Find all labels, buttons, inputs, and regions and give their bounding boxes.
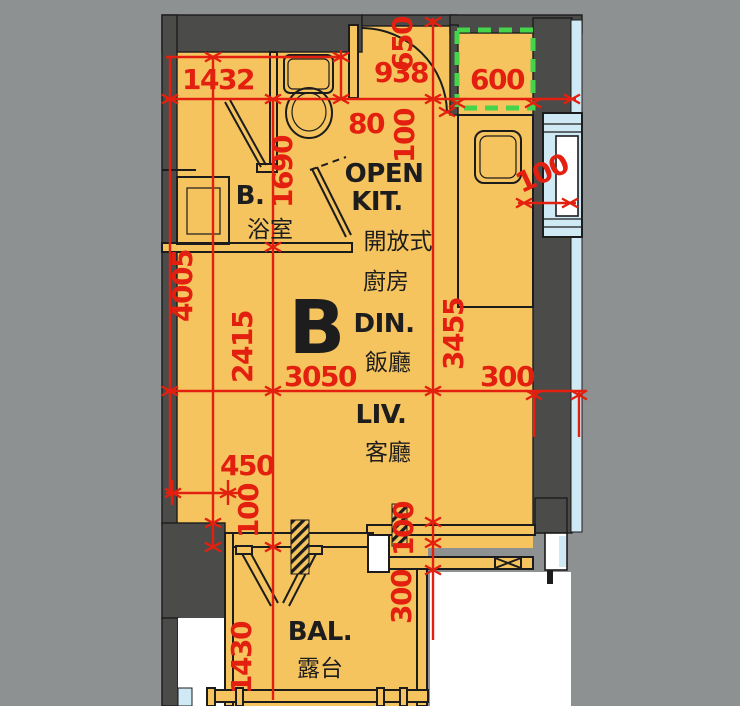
dim-left-height: 4005 xyxy=(166,250,199,322)
room-label-balcony-en: BAL. xyxy=(288,617,352,647)
hatched-wall-1 xyxy=(291,520,309,574)
dim-right-wall-300: 300 xyxy=(480,360,535,393)
room-label-kitchen-zh1: 開放式 xyxy=(364,229,433,255)
wall-stub xyxy=(547,570,553,584)
room-label-dining-en: DIN. xyxy=(354,309,415,339)
dim-right-height: 3455 xyxy=(437,298,470,370)
dim-balcony-depth: 1430 xyxy=(225,621,258,694)
lower-glazing-sliver xyxy=(178,688,192,706)
floor-plan-svg: 1432 938 650 600 80 100 1690 100 4005 24… xyxy=(0,0,740,706)
dim-gap-80: 80 xyxy=(348,107,385,140)
room-label-kitchen-zh2: 廚房 xyxy=(363,269,409,295)
sliding-door xyxy=(388,557,533,569)
dim-door-side-100: 100 xyxy=(388,108,421,163)
room-label-bathroom-abbr: B. xyxy=(236,181,265,211)
dim-bal-wall-300: 300 xyxy=(385,569,418,624)
floorplan-canvas: 1432 938 650 600 80 100 1690 100 4005 24… xyxy=(0,0,740,706)
room-label-living-zh: 客廳 xyxy=(365,440,411,466)
wall-column xyxy=(368,535,389,572)
dim-bal-wall-100: 100 xyxy=(387,501,420,556)
dim-entry-depth: 650 xyxy=(386,16,419,71)
room-label-balcony-zh: 露台 xyxy=(297,656,343,682)
room-label-kitchen-en2: KIT. xyxy=(351,187,403,217)
dim-notch-100: 100 xyxy=(232,483,265,538)
room-label-dining-zh: 飯廳 xyxy=(365,350,411,376)
dim-mid-height: 2415 xyxy=(226,311,259,383)
dim-bath-width: 1432 xyxy=(182,63,254,96)
balcony-door-glass xyxy=(559,536,566,567)
dim-ac-plinth: 600 xyxy=(470,63,525,96)
room-label-living-en: LIV. xyxy=(356,400,407,430)
room-label-kitchen-en1: OPEN xyxy=(345,159,424,189)
room-label-bathroom-zh: 浴室 xyxy=(247,217,293,243)
dim-bath-depth: 1690 xyxy=(266,135,299,208)
unit-label: B xyxy=(289,285,345,371)
dim-notch-450: 450 xyxy=(220,449,275,482)
kitchen-counter xyxy=(458,115,533,307)
